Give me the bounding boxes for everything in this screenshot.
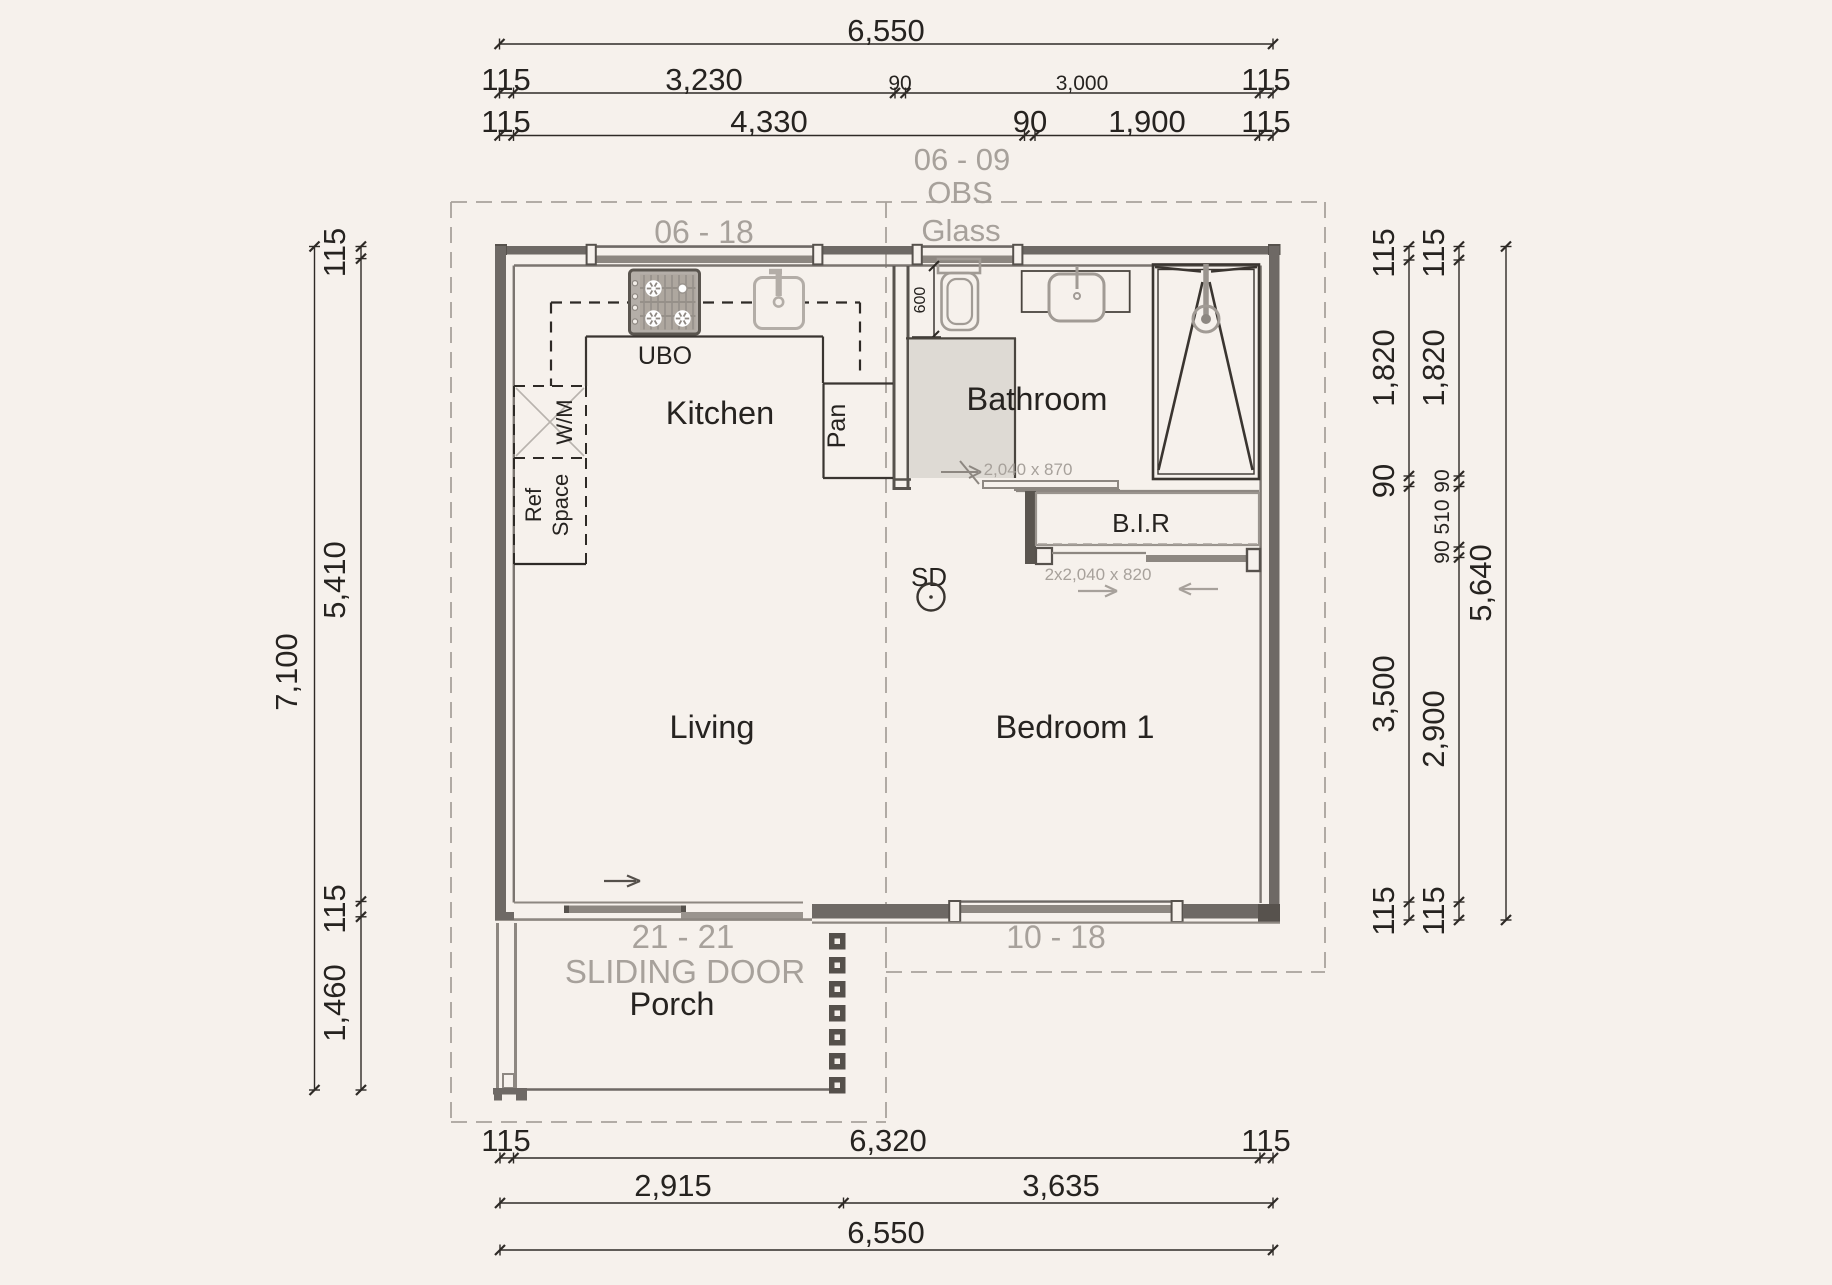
svg-text:115: 115 [1366,886,1401,935]
svg-text:3,000: 3,000 [1056,72,1109,95]
svg-text:Ref: Ref [521,487,546,522]
svg-text:UBO: UBO [638,342,692,370]
svg-text:Bedroom 1: Bedroom 1 [996,709,1155,745]
svg-text:1,900: 1,900 [1108,104,1186,139]
svg-text:3,635: 3,635 [1022,1168,1100,1203]
svg-text:2,040 x 870: 2,040 x 870 [984,460,1073,479]
svg-text:115: 115 [481,104,530,139]
svg-text:90: 90 [1013,104,1047,139]
svg-text:2,900: 2,900 [1416,690,1451,768]
svg-text:90: 90 [1431,469,1454,492]
svg-text:Porch: Porch [630,986,715,1022]
svg-text:6,550: 6,550 [847,13,925,48]
svg-text:115: 115 [317,228,352,277]
svg-text:5,410: 5,410 [317,541,352,619]
svg-text:5,640: 5,640 [1463,544,1498,622]
svg-text:1,820: 1,820 [1416,329,1451,407]
svg-text:90: 90 [1366,464,1401,498]
svg-text:Pan: Pan [823,404,851,448]
svg-text:115: 115 [1241,62,1290,97]
svg-text:3,230: 3,230 [665,62,743,97]
svg-text:SLIDING DOOR: SLIDING DOOR [565,953,805,990]
svg-text:115: 115 [481,1123,530,1158]
svg-text:600: 600 [912,287,929,314]
svg-text:1,460: 1,460 [317,964,352,1042]
svg-text:6,320: 6,320 [849,1123,927,1158]
svg-text:115: 115 [1416,228,1451,277]
svg-text:510: 510 [1431,499,1454,534]
svg-text:Living: Living [670,709,755,745]
svg-text:Bathroom: Bathroom [967,381,1108,417]
svg-text:Space: Space [548,474,573,536]
svg-text:2x2,040 x 820: 2x2,040 x 820 [1045,565,1152,584]
svg-text:1,820: 1,820 [1366,329,1401,407]
svg-text:115: 115 [1241,1123,1290,1158]
svg-text:115: 115 [481,62,530,97]
svg-text:115: 115 [1416,886,1451,935]
svg-text:6,550: 6,550 [847,1215,925,1250]
svg-text:115: 115 [1241,104,1290,139]
svg-text:OBS: OBS [927,175,992,210]
svg-text:2,915: 2,915 [634,1168,712,1203]
svg-text:06 - 18: 06 - 18 [654,214,754,250]
svg-text:90: 90 [888,72,911,95]
svg-text:10 - 18: 10 - 18 [1006,919,1106,955]
svg-text:B.I.R: B.I.R [1112,508,1170,538]
svg-text:06 - 09: 06 - 09 [914,142,1011,177]
svg-text:7,100: 7,100 [269,633,304,711]
svg-text:21 - 21: 21 - 21 [632,918,735,955]
svg-text:115: 115 [317,884,352,933]
svg-text:Kitchen: Kitchen [666,395,774,431]
svg-text:115: 115 [1366,228,1401,277]
svg-text:90: 90 [1431,540,1454,563]
svg-text:3,500: 3,500 [1366,655,1401,733]
svg-text:W/M: W/M [552,399,577,444]
svg-text:4,330: 4,330 [730,104,808,139]
svg-text:Glass: Glass [921,213,1000,248]
